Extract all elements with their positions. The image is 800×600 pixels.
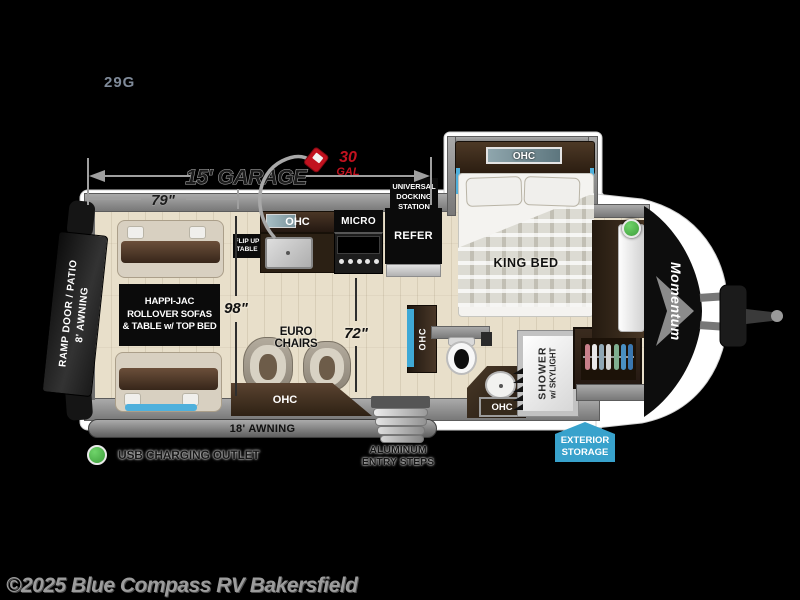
front-cap-group: Momentum xyxy=(0,0,800,600)
entry-step xyxy=(377,426,425,435)
entry-step xyxy=(380,435,424,443)
entry-step xyxy=(375,417,427,426)
usb-legend-dot xyxy=(87,445,107,465)
floorplan-canvas: 29G HAPPI-JAC ROLLOVER SOFAS & TABLE w/ … xyxy=(0,0,800,600)
docking-line3: STATION xyxy=(398,202,430,212)
entry-steps-base xyxy=(371,396,430,408)
ramp-awning-label: 8' AWNING xyxy=(74,286,91,343)
entry-step xyxy=(373,408,428,417)
docking-line1: UNIVERSAL xyxy=(392,182,435,192)
steps-line1: ALUMINUM xyxy=(360,444,436,456)
docking-line2: DOCKING xyxy=(396,192,431,202)
propane-cover xyxy=(720,285,747,347)
storage-line2: STORAGE xyxy=(562,447,609,458)
hitch-coupler xyxy=(771,310,783,322)
steps-line2: ENTRY STEPS xyxy=(360,456,436,468)
brand-logo: Momentum xyxy=(668,262,684,341)
usb-legend-label: USB CHARGING OUTLET xyxy=(118,448,260,462)
docking-station-label: UNIVERSAL DOCKING STATION xyxy=(390,178,438,216)
euro-chairs-label: EURO CHAIRS xyxy=(258,326,334,350)
main-awning-label: 18' AWNING xyxy=(230,423,296,435)
entry-steps-label: ALUMINUM ENTRY STEPS xyxy=(360,444,436,468)
storage-line1: EXTERIOR xyxy=(561,435,610,446)
dealer-copyright: ©2025 Blue Compass RV Bakersfield xyxy=(6,574,357,598)
ramp-door-label: RAMP DOOR / PATIO xyxy=(57,259,79,368)
